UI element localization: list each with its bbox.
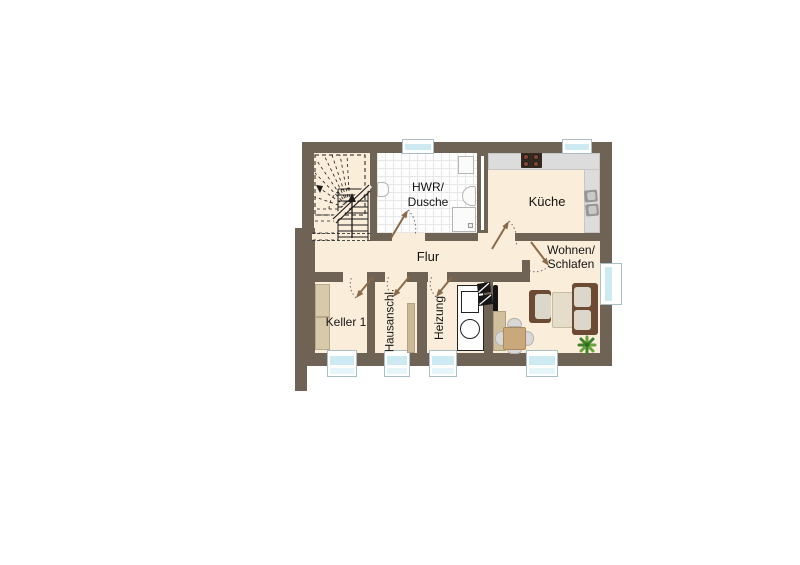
washbasin-icon: [377, 182, 389, 197]
water-tank-icon: [460, 319, 480, 339]
window-bottom-wohnen: [526, 350, 558, 377]
door-swing-keller: [345, 273, 379, 307]
window-sill: [432, 368, 454, 374]
kitchen-counter-top: [488, 153, 600, 170]
shower-drain-icon: [468, 223, 473, 228]
wall-left-lower: [295, 228, 315, 353]
door-swing-hwr: [385, 205, 419, 239]
wall-corner-stub: [295, 353, 307, 391]
sofa-cushion: [574, 287, 591, 307]
coffee-table-icon: [552, 292, 573, 328]
installation-shaft: [481, 156, 484, 230]
window-sill: [387, 368, 407, 374]
window-bottom-keller: [327, 350, 357, 377]
wall-hall-top-b: [425, 233, 478, 241]
burner-icon: [533, 154, 539, 160]
window-glass: [432, 356, 454, 365]
sink-basin-inner: [588, 206, 597, 215]
room-label-hausanschluss: Hausanschl.: [384, 287, 397, 355]
window-glass: [330, 356, 354, 365]
storage-shelf-icon: [315, 284, 330, 317]
room-label-wohnen-line1: Wohnen/: [533, 243, 609, 257]
chimney-icon: [476, 281, 494, 308]
sofa-icon: [572, 283, 598, 335]
room-label-wohnen-schlafen: Wohnen/ Schlafen: [533, 243, 609, 271]
room-label-hwr-line1: HWR/: [393, 180, 463, 195]
burner-icon: [523, 161, 529, 167]
room-label-keller: Keller 1: [316, 315, 376, 330]
wall-hall-bottom-a: [315, 272, 343, 282]
window-glass: [565, 144, 589, 150]
window-sill: [529, 368, 555, 374]
room-label-kueche: Küche: [517, 194, 577, 209]
staircase-icon: [312, 153, 370, 241]
page: HWR/ Dusche Küche Flur Wohnen/ Schlafen …: [0, 0, 800, 565]
dining-chair-icon: [507, 318, 522, 327]
shower-tray-icon: [452, 207, 476, 232]
window-sill: [330, 368, 354, 374]
room-label-wohnen-line2: Schlafen: [533, 257, 609, 271]
window-glass: [529, 356, 555, 365]
window-bottom-heizung: [429, 350, 457, 377]
dining-table-icon: [503, 327, 526, 350]
door-swing-kueche: [488, 217, 522, 251]
kitchen-sink-icon: [583, 188, 601, 217]
window-glass: [605, 267, 612, 301]
washing-machine-icon: [458, 156, 474, 174]
room-label-hwr-line2: Dusche: [393, 195, 463, 210]
window-glass: [405, 144, 431, 150]
room-label-heizung: Heizung: [432, 289, 446, 347]
window-glass: [387, 356, 407, 365]
window-top-kueche: [562, 139, 592, 154]
sink-basin-inner: [587, 192, 596, 201]
window-top-hwr: [402, 139, 434, 154]
floor-plan: HWR/ Dusche Küche Flur Wohnen/ Schlafen …: [295, 135, 627, 397]
burner-icon: [533, 161, 539, 167]
hand-basin-icon: [462, 186, 476, 206]
stove-icon: [521, 152, 542, 168]
plant-icon: [577, 335, 597, 355]
sink-basin: [585, 203, 599, 216]
sofa-cushion: [574, 310, 591, 330]
house-connection-unit-icon: [407, 303, 415, 353]
room-label-hwr: HWR/ Dusche: [393, 180, 463, 210]
wall-stair-hwr: [370, 153, 377, 233]
room-label-flur: Flur: [398, 249, 458, 264]
armchair-icon: [529, 290, 551, 323]
armchair-cushion: [535, 294, 551, 319]
sink-basin: [584, 190, 598, 203]
burner-icon: [523, 154, 529, 160]
